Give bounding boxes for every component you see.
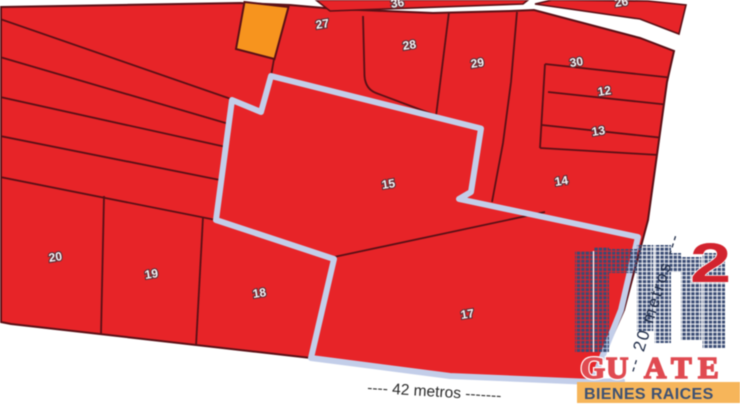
svg-text:30: 30 — [569, 54, 585, 70]
svg-text:19: 19 — [144, 266, 160, 282]
svg-text:27: 27 — [315, 16, 331, 32]
svg-text:A: A — [644, 350, 667, 385]
svg-text:12: 12 — [597, 83, 613, 99]
svg-text:E: E — [698, 350, 719, 385]
svg-text:BIENES RAICES: BIENES RAICES — [584, 386, 714, 403]
svg-text:14: 14 — [554, 173, 570, 189]
svg-text:29: 29 — [470, 55, 486, 71]
svg-text:U: U — [606, 350, 628, 385]
svg-text:18: 18 — [252, 285, 268, 301]
svg-text:36: 36 — [390, 0, 405, 11]
svg-text:2: 2 — [690, 232, 731, 294]
svg-text:17: 17 — [460, 306, 476, 322]
svg-text:T: T — [671, 350, 692, 385]
svg-text:15: 15 — [381, 176, 397, 192]
svg-text:13: 13 — [591, 123, 607, 139]
svg-text:20: 20 — [48, 249, 64, 265]
svg-text:28: 28 — [402, 37, 418, 53]
svg-text:G: G — [581, 350, 605, 385]
